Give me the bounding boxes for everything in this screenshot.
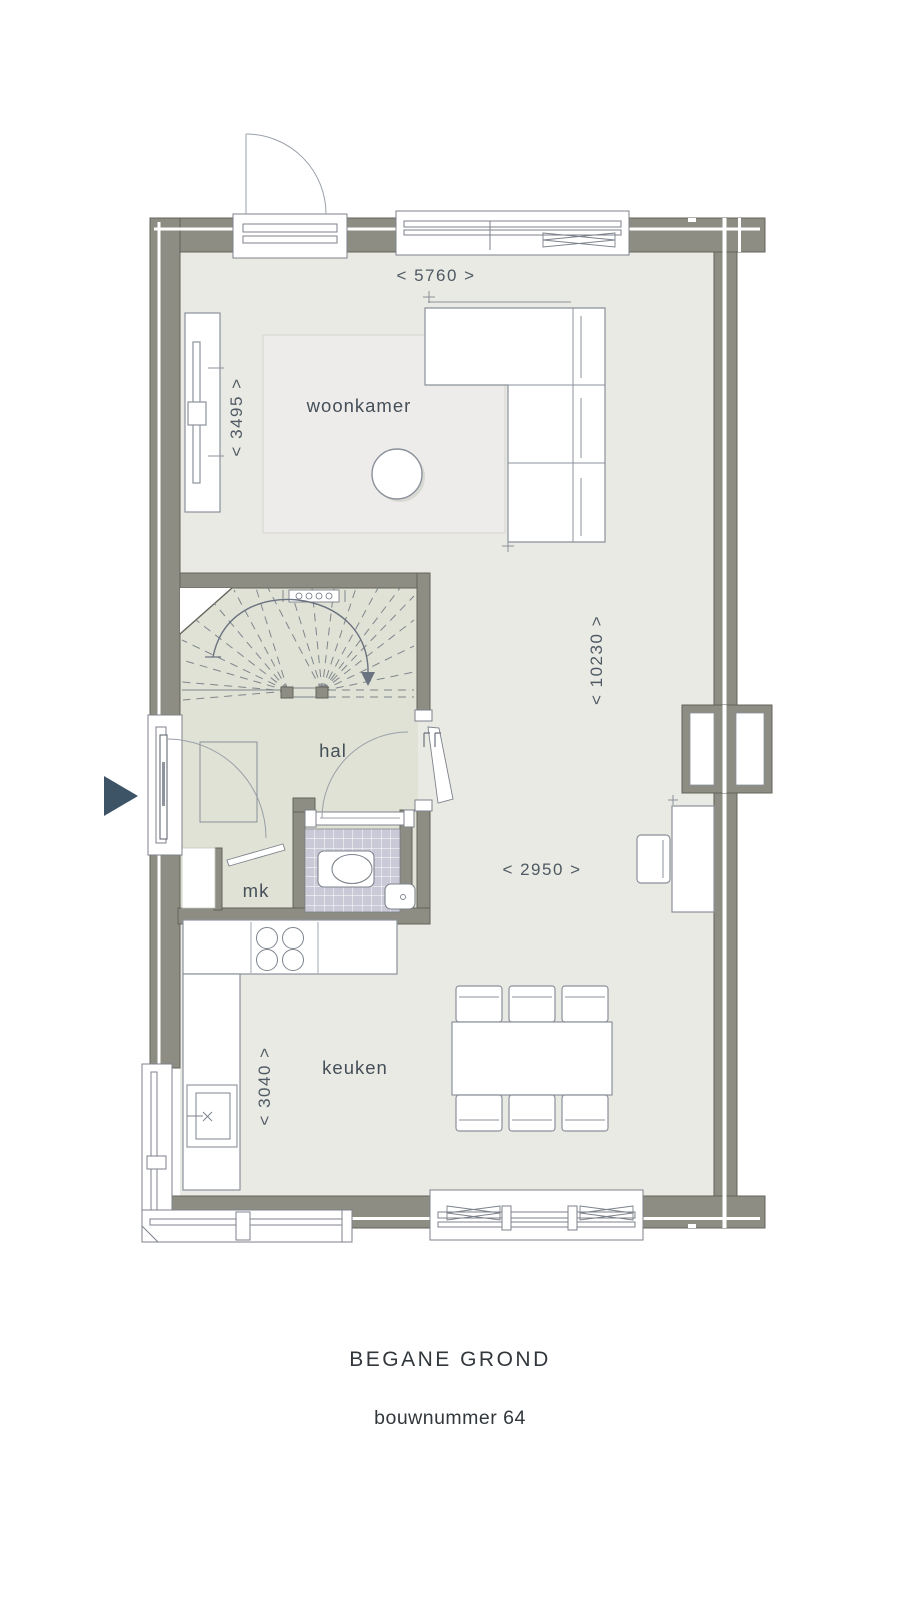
desk-chair — [637, 835, 670, 883]
room-label-hall: hal — [319, 740, 347, 761]
dining-chair — [456, 1095, 502, 1131]
build-number-subtitle: bouwnummer 64 — [374, 1407, 526, 1429]
front-door — [233, 134, 347, 258]
wall-hall-right-lower — [417, 810, 430, 924]
stair-newel-post — [281, 687, 293, 698]
dining-set — [452, 986, 612, 1131]
room-label-mk: mk — [243, 880, 270, 901]
dining-chair — [509, 1095, 555, 1131]
dim-kitchen-width: < 2950 > — [502, 860, 581, 879]
tv-cabinet — [185, 313, 224, 512]
dining-chair — [562, 986, 608, 1022]
dim-total-depth: < 10230 > — [587, 615, 606, 705]
kitchen-counter-left — [183, 974, 240, 1190]
dining-table — [452, 1022, 612, 1095]
floor-title: BEGANE GROND — [349, 1348, 551, 1371]
window-top — [396, 211, 629, 255]
stair-newel-post — [316, 687, 328, 698]
party-wall-niche — [682, 705, 772, 793]
window-bottom — [430, 1190, 643, 1240]
wall-toilet-left — [293, 798, 305, 924]
dim-top-width: < 5760 > — [396, 266, 475, 285]
wall-hall-right-upper — [417, 573, 430, 720]
dining-chair — [456, 986, 502, 1022]
dim-kitchen-depth: < 3040 > — [255, 1046, 274, 1125]
wall-stairs-top — [180, 573, 428, 588]
floorplan-page: < 5760 > < 3495 > < 10230 > < 2950 > < 3… — [0, 0, 900, 1600]
toilet-room — [305, 829, 415, 912]
dining-chair — [562, 1095, 608, 1131]
wall-left — [150, 218, 180, 1068]
dim-living-width: < 3495 > — [227, 377, 246, 456]
kitchen-sink — [187, 1085, 237, 1147]
entrance-recess — [182, 848, 215, 908]
room-label-kitchen: keuken — [322, 1057, 388, 1078]
toilet-fixture — [318, 851, 374, 887]
desk — [672, 806, 714, 912]
plan-titles: BEGANE GROND bouwnummer 64 — [349, 1348, 551, 1429]
floorplan-drawing: < 5760 > < 3495 > < 10230 > < 2950 > < 3… — [0, 0, 900, 1600]
toilet-sink — [385, 884, 415, 909]
dining-chair — [509, 986, 555, 1022]
entrance-arrow-icon — [104, 776, 138, 816]
room-label-living: woonkamer — [306, 395, 412, 416]
